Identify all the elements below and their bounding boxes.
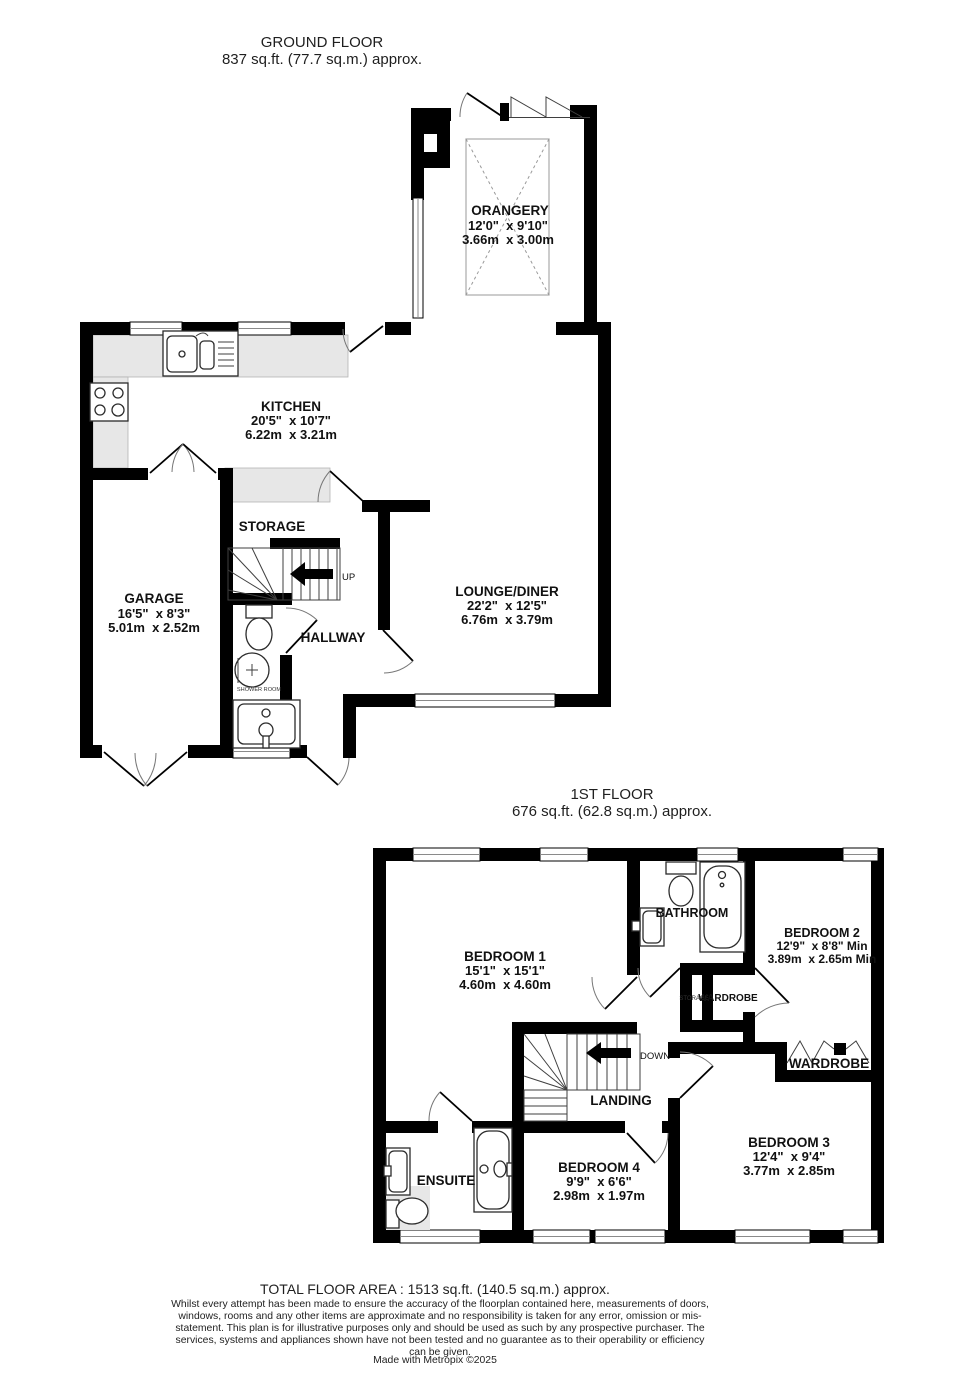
window	[697, 848, 738, 861]
first-floor-plan: BATHROOM BEDROOM 1 15'1" x 15'1" 4.60m x…	[373, 848, 884, 1243]
window	[533, 1230, 590, 1243]
gf-windows	[130, 198, 555, 758]
bedroom4-label: BEDROOM 4	[558, 1160, 640, 1175]
landing-label: LANDING	[590, 1093, 652, 1108]
bedroom2-label: BEDROOM 2	[784, 926, 860, 940]
bedroom3-door	[680, 1052, 713, 1098]
garage-metric: 5.01m x 2.52m	[108, 620, 200, 635]
window	[843, 848, 878, 861]
shower-room-label: SHOWER ROOM	[237, 687, 281, 693]
garage-kitchen-doors	[150, 444, 216, 473]
gf-doors	[104, 93, 590, 786]
bedroom2-imperial: 12'9" x 8'8" Min	[776, 939, 867, 953]
kitchen-imperial: 20'5" x 10'7"	[251, 413, 331, 428]
shower-icon	[235, 653, 269, 687]
disclaimer-text: Whilst every attempt has been made to en…	[170, 1299, 710, 1359]
shower-bath-icon	[474, 1128, 512, 1212]
bedroom4-metric: 2.98m x 1.97m	[553, 1188, 645, 1203]
window	[595, 1230, 665, 1243]
total-floor-area: TOTAL FLOOR AREA : 1513 sq.ft. (140.5 sq…	[135, 1281, 735, 1297]
bedroom2-metric: 3.89m x 2.65m Min	[768, 952, 877, 966]
bedroom3-imperial: 12'4" x 9'4"	[753, 1149, 826, 1164]
wardrobe-closet-label: WARDROBE	[698, 993, 758, 1004]
storage-label: STORAGE	[239, 519, 306, 534]
bedroom1-label: BEDROOM 1	[464, 949, 546, 964]
hob-icon	[90, 383, 128, 421]
garage-imperial: 16'5" x 8'3"	[118, 606, 191, 621]
window	[413, 198, 423, 318]
bathroom-label: BATHROOM	[656, 906, 729, 920]
bedroom2-door	[755, 968, 789, 1017]
basin-icon	[384, 1148, 410, 1195]
bedroom1-door	[592, 977, 637, 1009]
window	[413, 848, 480, 861]
ensuite-label: ENSUITE	[417, 1173, 476, 1188]
hall-lounge-door	[383, 630, 413, 673]
lounge-imperial: 22'2" x 12'5"	[467, 598, 547, 613]
floorplan-drawing: ORANGERY 12'0" x 9'10" 3.66m x 3.00m KIT…	[0, 0, 980, 1373]
kitchen-metric: 6.22m x 3.21m	[245, 427, 337, 442]
gf-walls	[80, 103, 611, 758]
bedroom1-imperial: 15'1" x 15'1"	[465, 963, 545, 978]
ground-floor-plan: ORANGERY 12'0" x 9'10" 3.66m x 3.00m KIT…	[80, 93, 611, 786]
bedroom4-door	[627, 1133, 668, 1163]
window	[735, 1230, 810, 1243]
window	[540, 848, 588, 861]
window	[238, 322, 291, 335]
front-door	[307, 757, 349, 785]
gf-stairs	[228, 548, 340, 600]
lounge-label: LOUNGE/DINER	[455, 584, 559, 599]
ensuite-door	[429, 1092, 472, 1121]
window	[415, 694, 555, 707]
bedroom1-metric: 4.60m x 4.60m	[459, 977, 551, 992]
kitchen-sink-icon	[163, 331, 238, 376]
orangery-metric: 3.66m x 3.00m	[462, 232, 554, 247]
window	[843, 1230, 878, 1243]
floorplan-page: GROUND FLOOR 837 sq.ft. (77.7 sq.m.) app…	[0, 0, 980, 1373]
garage-rear-doors	[104, 752, 187, 786]
bedroom3-metric: 3.77m x 2.85m	[743, 1163, 835, 1178]
orangery-imperial: 12'0" x 9'10"	[468, 218, 548, 233]
credit-text: Made with Metropix ©2025	[135, 1355, 735, 1366]
up-label: UP	[342, 572, 355, 583]
toilet-icon	[666, 862, 696, 906]
bedroom4-imperial: 9'9" x 6'6"	[566, 1174, 632, 1189]
lounge-metric: 6.76m x 3.79m	[461, 612, 553, 627]
hallway-label: HALLWAY	[301, 630, 366, 645]
gf-labels: ORANGERY 12'0" x 9'10" 3.66m x 3.00m KIT…	[108, 203, 559, 693]
up-arrow-icon	[290, 562, 333, 586]
garage-label: GARAGE	[124, 591, 183, 606]
down-label: DOWN	[640, 1051, 670, 1062]
bedroom3-label: BEDROOM 3	[748, 1135, 830, 1150]
orangery-label: ORANGERY	[471, 203, 549, 218]
down-arrow-icon	[586, 1042, 631, 1064]
toilet-icon	[246, 605, 272, 650]
bathroom-door	[638, 968, 680, 997]
window	[400, 1230, 480, 1243]
kitchen-label: KITCHEN	[261, 399, 321, 414]
back-door	[343, 326, 383, 352]
wardrobe-label: WARDROBE	[789, 1056, 869, 1071]
basin-icon	[233, 700, 300, 748]
